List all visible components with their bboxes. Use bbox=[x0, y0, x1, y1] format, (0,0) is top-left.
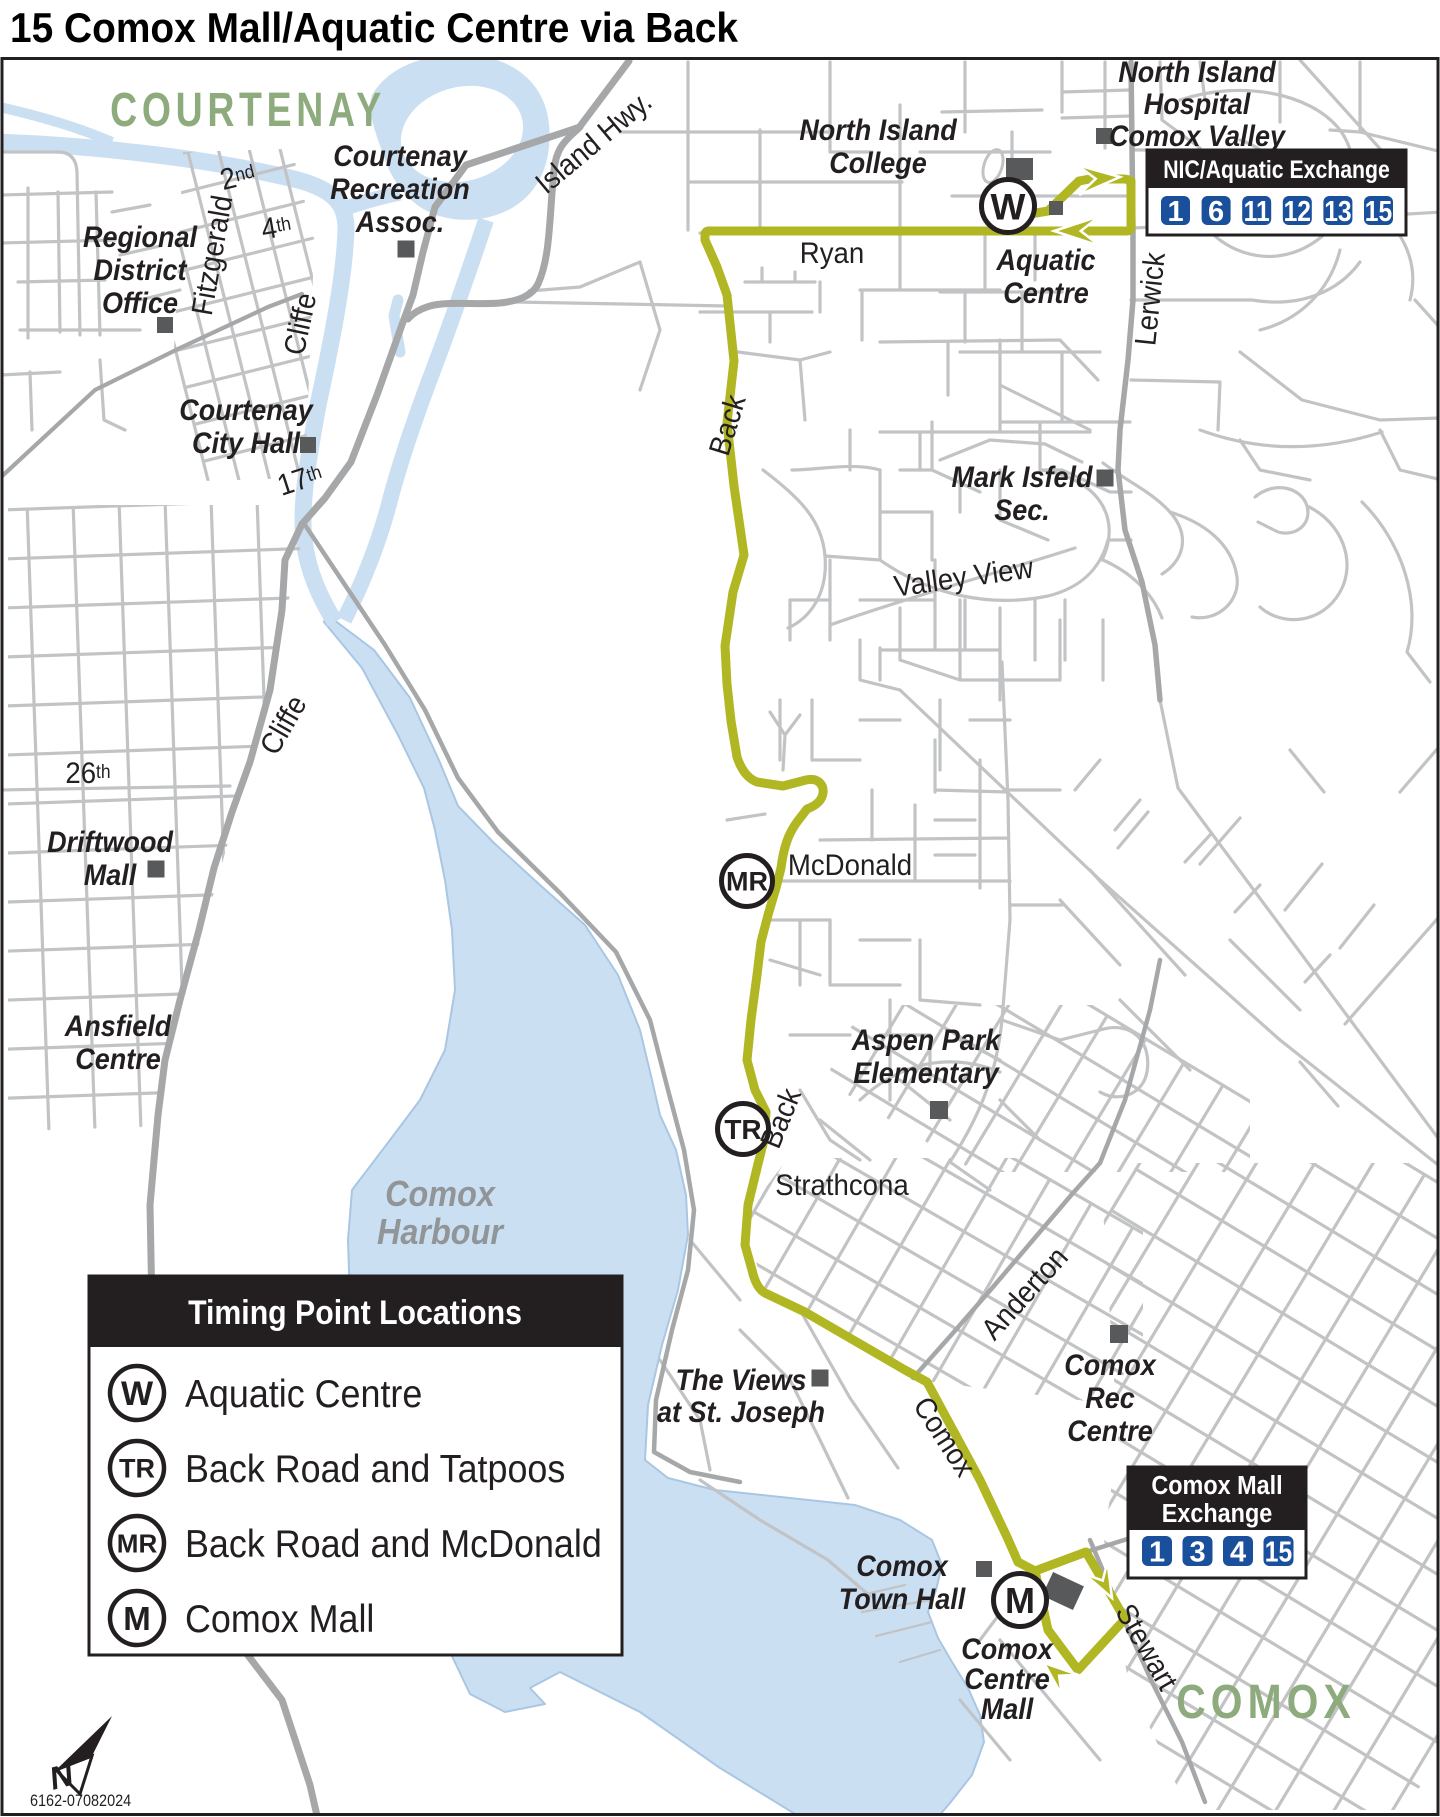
svg-text:Elementary: Elementary bbox=[853, 1057, 1000, 1091]
svg-text:North Island: North Island bbox=[1118, 56, 1276, 90]
svg-text:15: 15 bbox=[1365, 195, 1392, 227]
svg-text:City Hall: City Hall bbox=[192, 427, 301, 461]
svg-text:Centre: Centre bbox=[1003, 277, 1089, 311]
svg-text:3: 3 bbox=[1189, 1536, 1205, 1568]
svg-text:Regional: Regional bbox=[83, 221, 198, 255]
svg-text:NIC/Aquatic Exchange: NIC/Aquatic Exchange bbox=[1163, 155, 1390, 183]
svg-text:The Views: The Views bbox=[676, 1364, 807, 1398]
svg-text:6162-07082024: 6162-07082024 bbox=[30, 1792, 131, 1810]
svg-text:Comox: Comox bbox=[385, 1174, 497, 1214]
svg-text:Mark Isfeld: Mark Isfeld bbox=[952, 461, 1093, 495]
svg-text:15: 15 bbox=[1265, 1536, 1292, 1568]
svg-text:COMOX: COMOX bbox=[1176, 1676, 1356, 1729]
svg-text:Back Road and McDonald: Back Road and McDonald bbox=[185, 1522, 602, 1566]
svg-text:Ryan: Ryan bbox=[800, 237, 864, 270]
svg-text:Centre: Centre bbox=[964, 1663, 1050, 1697]
svg-text:13: 13 bbox=[1324, 195, 1351, 227]
svg-text:W: W bbox=[121, 1375, 154, 1413]
svg-text:Strathcona: Strathcona bbox=[775, 1169, 909, 1202]
svg-text:Mall: Mall bbox=[84, 859, 137, 893]
svg-text:Recreation: Recreation bbox=[330, 173, 469, 207]
svg-text:Timing Point Locations: Timing Point Locations bbox=[188, 1293, 522, 1331]
svg-text:District: District bbox=[94, 254, 188, 288]
svg-text:Comox Mall: Comox Mall bbox=[185, 1597, 374, 1641]
svg-text:Aspen Park: Aspen Park bbox=[851, 1024, 1002, 1058]
svg-text:Comox: Comox bbox=[856, 1550, 949, 1584]
svg-text:Rec: Rec bbox=[1085, 1382, 1135, 1416]
svg-text:4: 4 bbox=[1230, 1536, 1246, 1568]
svg-text:Hospital: Hospital bbox=[1144, 88, 1251, 122]
svg-text:Comox Valley: Comox Valley bbox=[1109, 120, 1287, 154]
svg-text:6: 6 bbox=[1208, 196, 1224, 228]
svg-text:Comox: Comox bbox=[961, 1633, 1054, 1667]
svg-text:12: 12 bbox=[1284, 195, 1311, 227]
svg-text:Comox Mall: Comox Mall bbox=[1151, 1472, 1282, 1500]
svg-text:MR: MR bbox=[726, 867, 768, 897]
svg-text:Back Road and Tatpoos: Back Road and Tatpoos bbox=[185, 1447, 565, 1491]
svg-text:Courtenay: Courtenay bbox=[333, 140, 468, 174]
svg-text:Aquatic Centre: Aquatic Centre bbox=[185, 1372, 422, 1416]
svg-text:College: College bbox=[829, 147, 927, 181]
svg-text:Town Hall: Town Hall bbox=[839, 1583, 966, 1617]
svg-text:Ansfield: Ansfield bbox=[64, 1010, 172, 1044]
svg-text:Courtenay: Courtenay bbox=[179, 394, 314, 428]
svg-text:Assoc.: Assoc. bbox=[355, 206, 444, 240]
svg-text:Aquatic: Aquatic bbox=[996, 244, 1096, 278]
svg-text:Comox: Comox bbox=[1064, 1349, 1157, 1383]
svg-text:Exchange: Exchange bbox=[1162, 1500, 1272, 1528]
svg-text:Office: Office bbox=[102, 287, 178, 321]
svg-text:11: 11 bbox=[1244, 195, 1270, 227]
svg-text:MR: MR bbox=[117, 1528, 158, 1558]
svg-text:Mall: Mall bbox=[981, 1693, 1034, 1727]
svg-text:McDonald: McDonald bbox=[788, 849, 912, 882]
svg-text:Harbour: Harbour bbox=[377, 1212, 505, 1252]
svg-text:1: 1 bbox=[1167, 196, 1183, 228]
svg-text:North Island: North Island bbox=[799, 114, 957, 148]
svg-text:TR: TR bbox=[119, 1454, 155, 1484]
svg-text:COURTENAY: COURTENAY bbox=[110, 84, 386, 138]
svg-text:Centre: Centre bbox=[1067, 1415, 1153, 1449]
svg-text:15 Comox Mall/Aquatic Centre v: 15 Comox Mall/Aquatic Centre via Back bbox=[10, 4, 739, 51]
svg-text:Centre: Centre bbox=[75, 1043, 161, 1077]
svg-text:Sec.: Sec. bbox=[994, 494, 1050, 528]
svg-text:M: M bbox=[123, 1600, 151, 1637]
svg-text:1: 1 bbox=[1149, 1536, 1165, 1568]
svg-text:Driftwood: Driftwood bbox=[47, 826, 173, 860]
svg-text:at St. Joseph: at St. Joseph bbox=[657, 1396, 825, 1430]
svg-text:W: W bbox=[991, 186, 1026, 227]
svg-text:M: M bbox=[1005, 1580, 1035, 1621]
